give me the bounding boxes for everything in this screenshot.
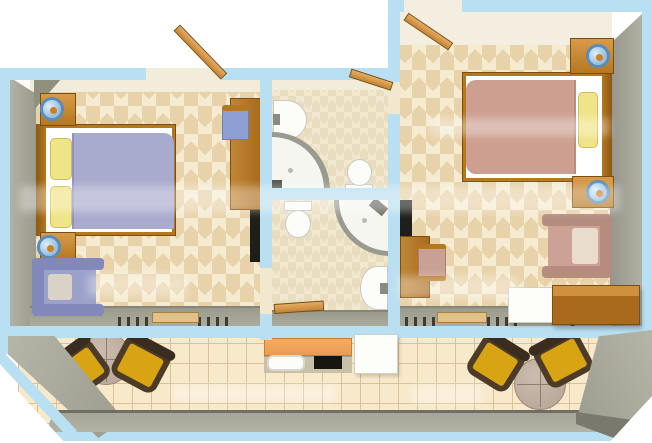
lamp-left-top (40, 97, 64, 121)
armchair-left-arm-top (44, 258, 104, 270)
watermark-haze (430, 118, 610, 136)
kitchenette-fridge (354, 334, 398, 374)
balcony-wall-bottom (46, 410, 612, 432)
desk-chair-left (222, 108, 249, 140)
floor-plan (0, 0, 652, 443)
armchair-left-cushion (48, 274, 72, 300)
watermark-haze (172, 384, 337, 402)
lamp-center-dot (50, 107, 57, 114)
shower-upper-drain (288, 168, 293, 173)
radiator-left-2 (198, 317, 234, 326)
watermark-haze (20, 186, 620, 212)
door-opening-bedroom-right (404, 0, 462, 12)
wall-face-east (610, 12, 644, 330)
radiator-right-1 (405, 317, 439, 326)
balcony-door-threshold-left (152, 312, 199, 323)
lamp-center-dot (596, 54, 603, 61)
kitchen-cooktop (314, 356, 342, 369)
wall-face-north-left (30, 78, 262, 92)
armchair-left-arm-bottom (44, 304, 104, 316)
sideboard (552, 285, 640, 325)
bed-left-pillow-top (50, 138, 72, 180)
armchair-right-back (598, 214, 612, 278)
desk-chair-right-armbar-top (418, 244, 446, 249)
desk-chair-right (418, 247, 446, 277)
lamp-left-bottom (37, 235, 61, 259)
armchair-right-arm-bottom (542, 266, 600, 278)
bed-left-headboard (36, 124, 46, 236)
watermark-haze (398, 276, 518, 298)
armchair-right-arm-top (542, 214, 600, 226)
toilet-upper-bowl (347, 159, 372, 186)
washbasin-upper-faucet (273, 114, 280, 125)
wall-balcony-inner (0, 326, 652, 338)
lamp-center-dot (47, 245, 54, 252)
wall-left-outer (0, 68, 10, 354)
desk-chair-left-backbar (222, 105, 249, 111)
washbasin-lower-faucet (380, 283, 388, 294)
toilet-lower-bowl (285, 210, 311, 238)
kitchen-sink (267, 355, 305, 371)
watermark-haze (412, 384, 482, 404)
door-opening-bathroom-lower (260, 268, 272, 314)
lamp-right-top (586, 44, 610, 68)
radiator-left-1 (118, 317, 154, 326)
balcony-door-threshold-right (437, 312, 487, 323)
shower-lower-drain (362, 218, 367, 223)
armchair-right-cushion (572, 228, 598, 264)
kitchen-counter-top (264, 338, 352, 356)
watermark-haze (88, 274, 188, 296)
bed-left-duvet (72, 133, 174, 229)
